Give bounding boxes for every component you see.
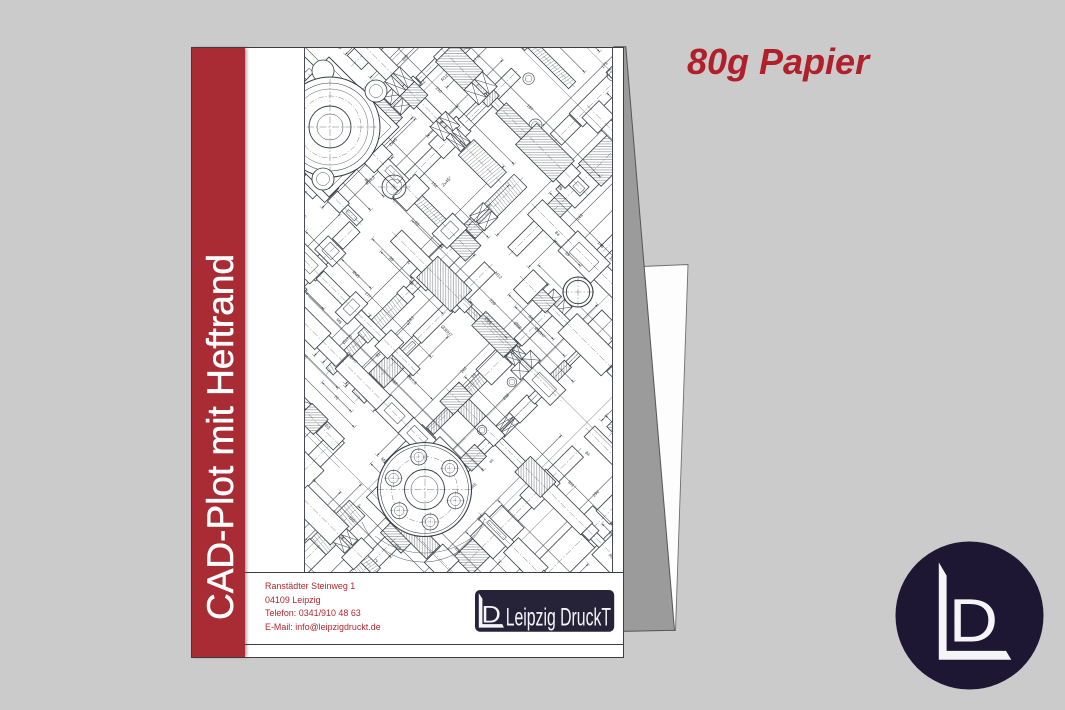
svg-text:Leipzig DruckT: Leipzig DruckT — [505, 604, 611, 631]
svg-text:Ø88: Ø88 — [612, 268, 613, 278]
svg-text:D: D — [481, 601, 500, 628]
svg-text:D: D — [949, 586, 998, 655]
